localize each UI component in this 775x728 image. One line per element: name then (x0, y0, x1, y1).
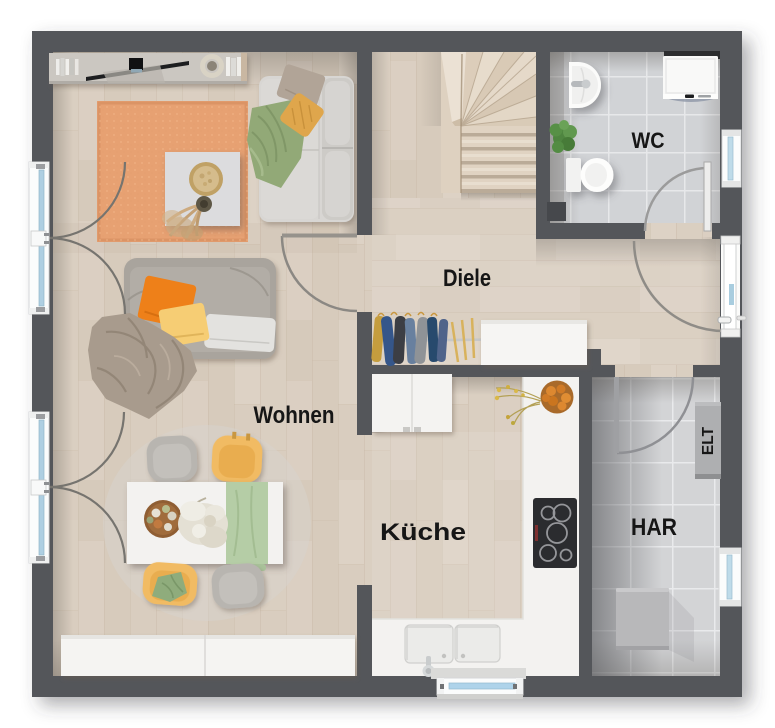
svg-text:Küche: Küche (380, 519, 466, 546)
svg-text:Diele: Diele (443, 265, 491, 292)
svg-text:HAR: HAR (631, 514, 677, 541)
svg-text:Wohnen: Wohnen (254, 402, 335, 429)
svg-text:ELT: ELT (700, 426, 717, 455)
svg-text:WC: WC (632, 128, 665, 153)
